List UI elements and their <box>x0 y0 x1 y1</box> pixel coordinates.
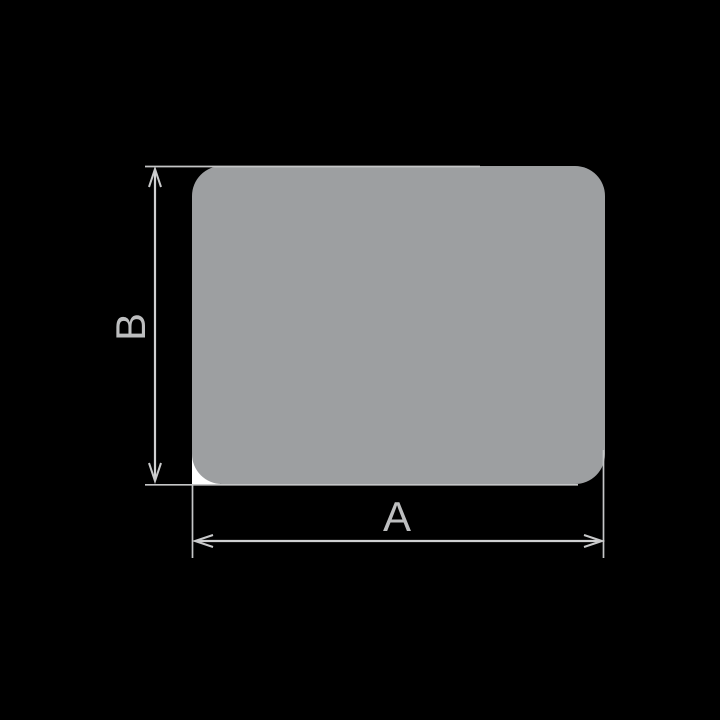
diagram-canvas: A B <box>0 0 720 720</box>
profile-dimension-diagram: A B <box>0 0 720 720</box>
dimension-label-a: A <box>383 493 411 540</box>
dimension-label-b: B <box>107 313 154 341</box>
profile-shape <box>192 166 605 484</box>
